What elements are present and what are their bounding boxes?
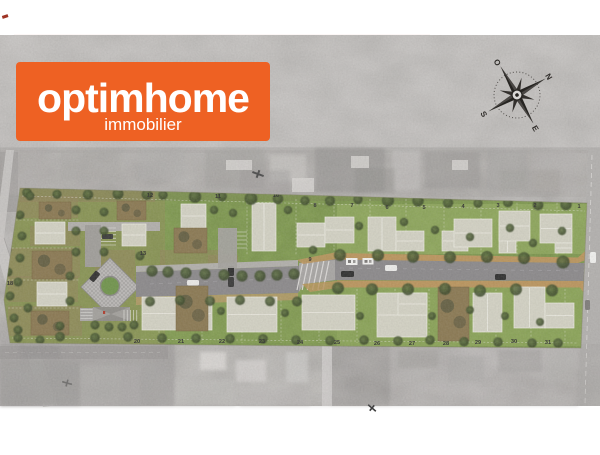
svg-text:immobilier: immobilier xyxy=(104,115,182,134)
